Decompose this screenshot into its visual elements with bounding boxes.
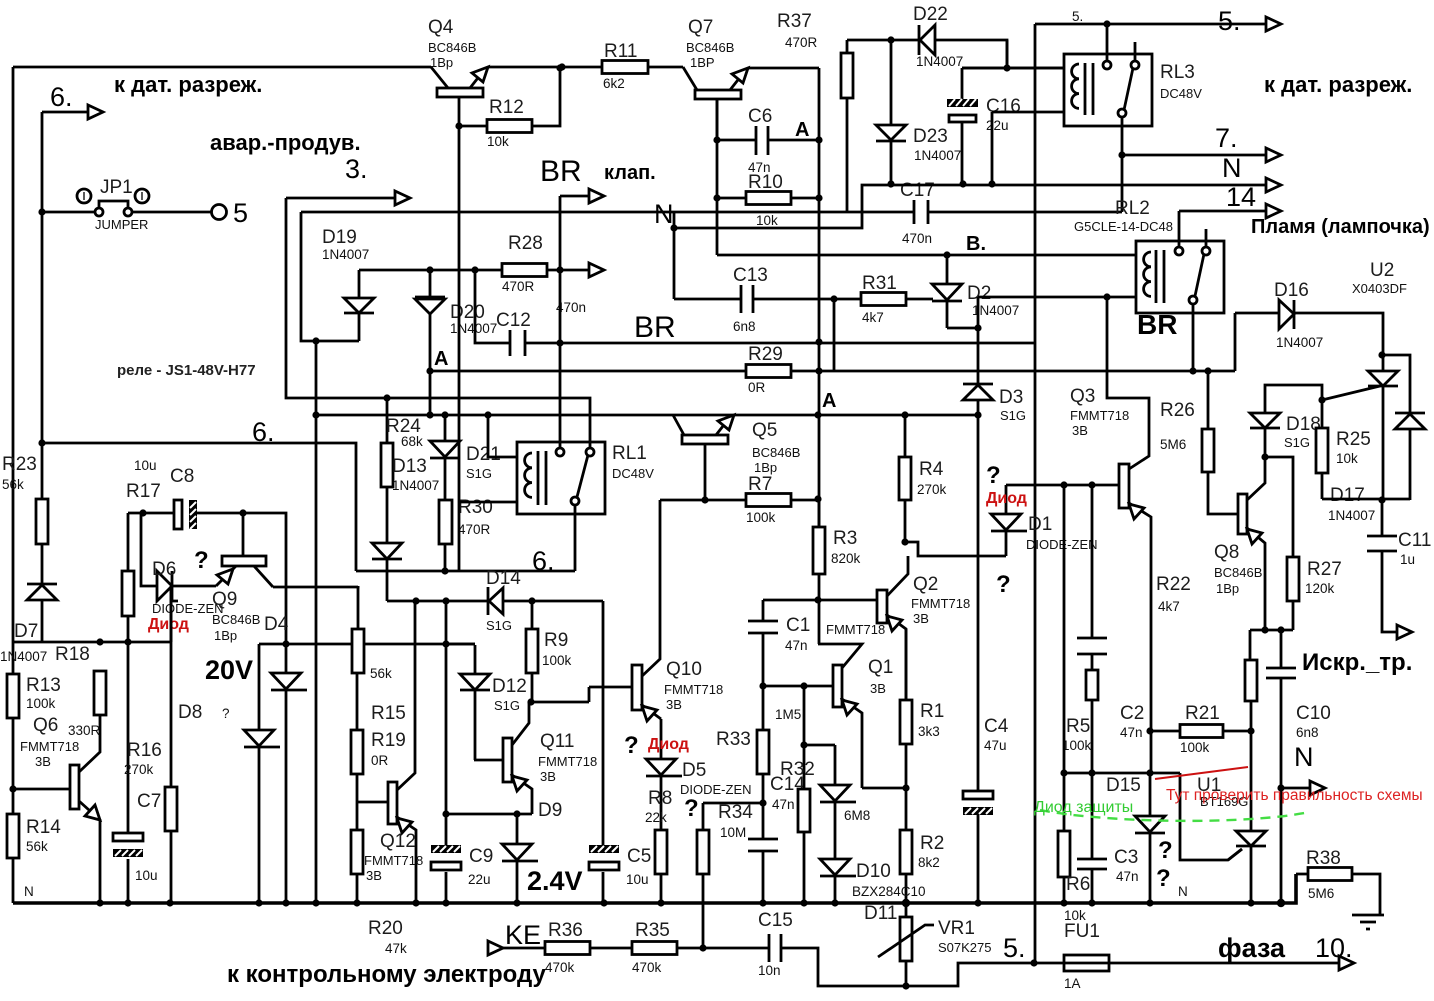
svg-text:120k: 120k (1305, 581, 1335, 596)
svg-text:D8: D8 (178, 702, 202, 723)
svg-text:68k: 68k (401, 434, 423, 449)
svg-text:4k7: 4k7 (1158, 599, 1180, 614)
svg-text:BC846B: BC846B (686, 40, 734, 55)
svg-text:U2: U2 (1370, 260, 1394, 281)
svg-text:N: N (1178, 884, 1188, 899)
svg-text:6.: 6. (252, 417, 275, 447)
svg-text:1N4007: 1N4007 (1276, 335, 1323, 350)
svg-text:10M: 10M (720, 825, 746, 840)
svg-text:1Bp: 1Bp (430, 55, 453, 70)
svg-text:47n: 47n (1120, 725, 1143, 740)
svg-text:RL1: RL1 (612, 443, 647, 464)
svg-text:BZX284C10: BZX284C10 (852, 884, 926, 899)
svg-text:R21: R21 (1185, 703, 1220, 724)
svg-text:?: ? (194, 547, 209, 574)
svg-text:Q2: Q2 (913, 574, 938, 595)
svg-text:D20: D20 (450, 302, 485, 323)
svg-text:10.: 10. (1315, 933, 1353, 963)
svg-text:R28: R28 (508, 233, 543, 254)
svg-text:6.: 6. (50, 82, 73, 112)
svg-text:?: ? (996, 571, 1011, 598)
svg-text:?: ? (624, 732, 639, 759)
svg-text:к дат. разреж.: к дат. разреж. (1264, 72, 1412, 97)
svg-text:R17: R17 (126, 481, 161, 502)
svg-text:BC846B: BC846B (752, 445, 800, 460)
svg-text:?: ? (684, 795, 699, 822)
svg-text:D13: D13 (392, 456, 427, 477)
svg-text:R32: R32 (780, 759, 815, 780)
svg-text:?: ? (986, 462, 1001, 489)
svg-text:Диод: Диод (148, 616, 189, 633)
svg-text:5.: 5. (1003, 933, 1026, 963)
svg-text:3.: 3. (345, 154, 368, 184)
svg-text:Диод: Диод (986, 490, 1027, 507)
svg-text:FMMT718: FMMT718 (664, 682, 723, 697)
svg-text:3B: 3B (366, 868, 382, 883)
svg-text:3B: 3B (666, 697, 682, 712)
svg-text:C7: C7 (137, 791, 161, 812)
svg-text:KE: KE (505, 920, 541, 950)
svg-text:BR: BR (540, 155, 582, 188)
svg-text:DIODE-ZEN: DIODE-ZEN (1026, 537, 1098, 552)
svg-text:D3: D3 (999, 387, 1023, 408)
svg-text:R29: R29 (748, 344, 783, 365)
svg-text:FMMT718: FMMT718 (20, 739, 79, 754)
svg-text:47k: 47k (385, 941, 407, 956)
svg-text:10u: 10u (135, 868, 158, 883)
svg-text:Q6: Q6 (33, 715, 58, 736)
svg-text:R12: R12 (489, 97, 524, 118)
svg-text:1Bp: 1Bp (754, 460, 777, 475)
svg-text:470R: 470R (502, 279, 535, 294)
svg-text:C4: C4 (984, 716, 1009, 737)
svg-text:47n: 47n (772, 797, 795, 812)
svg-text:C9: C9 (469, 846, 493, 867)
svg-text:Тут проверить правильность схе: Тут проверить правильность схемы (1166, 787, 1423, 804)
svg-text:R22: R22 (1156, 574, 1191, 595)
svg-text:C2: C2 (1120, 703, 1144, 724)
svg-text:Q9: Q9 (212, 589, 237, 610)
svg-text:C12: C12 (496, 310, 531, 331)
svg-text:Q3: Q3 (1070, 386, 1095, 407)
svg-text:56k: 56k (26, 839, 48, 854)
svg-text:R38: R38 (1306, 848, 1341, 869)
svg-text:A: A (822, 390, 836, 412)
svg-text:BC846B: BC846B (428, 40, 476, 55)
svg-text:C5: C5 (627, 846, 651, 867)
svg-text:D7: D7 (14, 621, 38, 642)
svg-text:1A: 1A (1064, 976, 1081, 991)
svg-text:R10: R10 (748, 172, 783, 193)
svg-text:A: A (795, 119, 809, 141)
svg-text:3k3: 3k3 (918, 724, 940, 739)
svg-text:RL2: RL2 (1115, 198, 1150, 219)
svg-text:3B: 3B (870, 681, 886, 696)
svg-text:Q8: Q8 (1214, 542, 1239, 563)
svg-text:D9: D9 (538, 800, 562, 821)
svg-text:D4: D4 (264, 614, 289, 635)
svg-text:47n: 47n (1116, 869, 1139, 884)
svg-text:1Bp: 1Bp (1216, 581, 1239, 596)
svg-text:R30: R30 (458, 497, 493, 518)
svg-text:FMMT718: FMMT718 (1070, 408, 1129, 423)
svg-text:R11: R11 (604, 41, 637, 62)
svg-text:R13: R13 (26, 675, 61, 696)
svg-text:1N4007: 1N4007 (322, 247, 369, 262)
svg-text:FMMT718: FMMT718 (911, 596, 970, 611)
svg-text:D11: D11 (864, 903, 897, 924)
svg-text:S1G: S1G (1000, 408, 1026, 423)
svg-text:470k: 470k (545, 960, 575, 975)
svg-text:Q12: Q12 (380, 831, 416, 852)
svg-text:R25: R25 (1336, 429, 1371, 450)
svg-text:N: N (1222, 153, 1242, 183)
svg-text:BR: BR (1137, 309, 1177, 340)
svg-text:FMMT718: FMMT718 (538, 754, 597, 769)
svg-text:14: 14 (1226, 182, 1256, 212)
svg-text:S1G: S1G (466, 466, 492, 481)
svg-text:JP1: JP1 (100, 177, 133, 198)
svg-text:FMMT718: FMMT718 (364, 853, 423, 868)
svg-text:Q7: Q7 (688, 17, 713, 38)
svg-text:R1: R1 (920, 701, 944, 722)
svg-text:270k: 270k (917, 482, 947, 497)
svg-text:47u: 47u (984, 738, 1007, 753)
svg-text:470k: 470k (632, 960, 662, 975)
svg-text:2.4V: 2.4V (527, 866, 583, 896)
svg-text:6M8: 6M8 (844, 808, 870, 823)
svg-text:Q5: Q5 (752, 420, 777, 441)
svg-text:DC48V: DC48V (1160, 86, 1202, 101)
svg-text:1N4007: 1N4007 (0, 649, 47, 664)
svg-text:R2: R2 (920, 833, 944, 854)
svg-text:270k: 270k (124, 762, 154, 777)
svg-text:фаза: фаза (1218, 933, 1286, 963)
svg-text:10k: 10k (487, 134, 509, 149)
svg-text:1N4007: 1N4007 (1328, 508, 1375, 523)
svg-text:к контрольному электроду: к контрольному электроду (227, 961, 547, 988)
svg-text:R7: R7 (748, 474, 772, 495)
svg-text:D15: D15 (1106, 775, 1141, 796)
svg-text:5M6: 5M6 (1308, 886, 1334, 901)
svg-text:100k: 100k (1180, 740, 1210, 755)
svg-text:R3: R3 (833, 528, 857, 549)
svg-text:D21: D21 (466, 444, 501, 465)
svg-text:R8: R8 (648, 788, 672, 809)
svg-text:R4: R4 (919, 459, 944, 480)
svg-text:10u: 10u (134, 458, 157, 473)
svg-text:20V: 20V (205, 655, 253, 685)
svg-text:1N4007: 1N4007 (914, 148, 961, 163)
svg-text:R23: R23 (2, 454, 37, 475)
svg-text:Q11: Q11 (540, 731, 575, 752)
svg-text:B.: B. (966, 233, 986, 255)
svg-text:0R: 0R (371, 753, 389, 768)
svg-text:R35: R35 (635, 920, 670, 941)
svg-text:10n: 10n (758, 963, 781, 978)
svg-text:N: N (654, 199, 674, 229)
svg-text:C6: C6 (748, 106, 772, 127)
svg-text:3B: 3B (913, 611, 929, 626)
svg-text:56k: 56k (2, 477, 24, 492)
svg-text:R36: R36 (548, 920, 583, 941)
svg-text:?: ? (1156, 865, 1171, 892)
svg-text:DC48V: DC48V (612, 466, 654, 481)
svg-text:C15: C15 (758, 910, 793, 931)
svg-text:5: 5 (233, 198, 248, 228)
svg-text:4k7: 4k7 (862, 310, 884, 325)
svg-text:D23: D23 (913, 126, 948, 147)
svg-text:RL3: RL3 (1160, 62, 1195, 83)
svg-text:5M6: 5M6 (1160, 437, 1186, 452)
svg-text:BC846B: BC846B (1214, 565, 1262, 580)
svg-text:A: A (434, 348, 448, 370)
svg-text:Диод защиты: Диод защиты (1034, 799, 1133, 816)
svg-text:6n8: 6n8 (1296, 725, 1319, 740)
svg-text:R16: R16 (127, 740, 162, 761)
svg-text:0R: 0R (748, 380, 766, 395)
svg-text:R19: R19 (371, 730, 406, 751)
svg-text:S1G: S1G (1284, 435, 1310, 450)
svg-text:47n: 47n (785, 638, 808, 653)
svg-text:C1: C1 (786, 615, 810, 636)
svg-text:авар.-продув.: авар.-продув. (210, 130, 361, 155)
svg-text:470n: 470n (902, 231, 932, 246)
svg-text:5.: 5. (1218, 6, 1241, 36)
svg-text:D19: D19 (322, 227, 357, 248)
svg-text:Q4: Q4 (428, 17, 454, 38)
svg-text:56k: 56k (370, 666, 392, 681)
svg-text:C3: C3 (1114, 847, 1138, 868)
svg-text:FU1: FU1 (1064, 921, 1100, 942)
svg-text:D10: D10 (856, 861, 891, 882)
svg-text:C13: C13 (733, 265, 768, 286)
svg-text:10k: 10k (756, 213, 778, 228)
svg-text:10k: 10k (1336, 451, 1358, 466)
svg-text:R14: R14 (26, 817, 61, 838)
svg-text:100k: 100k (1062, 738, 1092, 753)
svg-text:реле - JS1-48V-H77: реле - JS1-48V-H77 (117, 362, 256, 379)
svg-text:6k2: 6k2 (603, 76, 625, 91)
svg-text:6n8: 6n8 (733, 319, 756, 334)
svg-text:R34: R34 (718, 802, 753, 823)
svg-text:D22: D22 (913, 4, 948, 25)
svg-text:C10: C10 (1296, 703, 1331, 724)
svg-text:D5: D5 (682, 760, 706, 781)
svg-text:JUMPER: JUMPER (95, 217, 148, 232)
svg-text:10u: 10u (626, 872, 649, 887)
svg-text:D1: D1 (1028, 514, 1052, 535)
svg-text:R31: R31 (862, 273, 897, 294)
svg-text:100k: 100k (542, 653, 572, 668)
svg-text:Q10: Q10 (666, 659, 702, 680)
svg-text:R20: R20 (368, 918, 403, 939)
svg-text:R37: R37 (777, 11, 812, 32)
svg-text:3B: 3B (35, 754, 51, 769)
svg-text:D14: D14 (486, 568, 521, 589)
svg-text:Искр._тр.: Искр._тр. (1302, 649, 1412, 676)
svg-text:1N4007: 1N4007 (916, 54, 963, 69)
svg-text:100k: 100k (26, 696, 56, 711)
svg-text:X0403DF: X0403DF (1352, 281, 1407, 296)
svg-text:D6: D6 (152, 559, 176, 580)
svg-text:R6: R6 (1066, 874, 1090, 895)
svg-text:S1G: S1G (494, 698, 520, 713)
svg-text:R33: R33 (716, 729, 751, 750)
svg-text:1u: 1u (1400, 552, 1415, 567)
svg-text:C11: C11 (1398, 530, 1431, 551)
svg-text:1BP: 1BP (690, 55, 715, 70)
svg-text:D17: D17 (1330, 485, 1365, 506)
svg-text:?: ? (222, 706, 230, 721)
svg-text:клап.: клап. (604, 162, 656, 184)
svg-text:Диод: Диод (648, 736, 689, 753)
svg-text:G5CLE-14-DC48: G5CLE-14-DC48 (1074, 219, 1173, 234)
svg-text:330R: 330R (68, 723, 101, 738)
svg-text:C8: C8 (170, 466, 194, 487)
svg-text:1N4007: 1N4007 (392, 478, 439, 493)
svg-text:820k: 820k (831, 551, 861, 566)
svg-text:D16: D16 (1274, 280, 1309, 301)
svg-text:R15: R15 (371, 703, 406, 724)
svg-text:470R: 470R (458, 522, 491, 537)
svg-text:100k: 100k (746, 510, 776, 525)
svg-text:8k2: 8k2 (918, 855, 940, 870)
svg-text:?: ? (1158, 837, 1173, 864)
svg-text:470R: 470R (785, 35, 818, 50)
svg-text:1Bp: 1Bp (214, 628, 237, 643)
svg-text:5.: 5. (1072, 9, 1083, 24)
svg-text:R26: R26 (1160, 400, 1195, 421)
svg-text:Q1: Q1 (868, 657, 893, 678)
svg-text:R27: R27 (1307, 559, 1342, 580)
svg-text:22u: 22u (986, 118, 1009, 133)
svg-text:7.: 7. (1215, 123, 1238, 153)
svg-text:N: N (24, 884, 34, 899)
svg-text:3B: 3B (1072, 423, 1088, 438)
svg-text:к дат. разреж.: к дат. разреж. (114, 72, 262, 97)
svg-text:22k: 22k (645, 810, 667, 825)
svg-text:R18: R18 (55, 644, 90, 665)
svg-text:6.: 6. (532, 546, 555, 576)
svg-text:1M5: 1M5 (775, 707, 801, 722)
svg-text:R5: R5 (1066, 716, 1090, 737)
svg-text:Пламя (лампочка): Пламя (лампочка) (1251, 216, 1430, 238)
svg-text:D12: D12 (492, 676, 527, 697)
svg-text:S1G: S1G (486, 618, 512, 633)
svg-text:R9: R9 (544, 630, 568, 651)
svg-text:BC846B: BC846B (212, 612, 260, 627)
svg-text:VR1: VR1 (938, 918, 975, 939)
svg-text:N: N (1294, 742, 1314, 772)
svg-text:BR: BR (634, 311, 676, 344)
svg-text:3B: 3B (540, 769, 556, 784)
svg-text:22u: 22u (468, 872, 491, 887)
svg-text:C17: C17 (900, 180, 935, 201)
svg-text:S07K275: S07K275 (938, 940, 992, 955)
